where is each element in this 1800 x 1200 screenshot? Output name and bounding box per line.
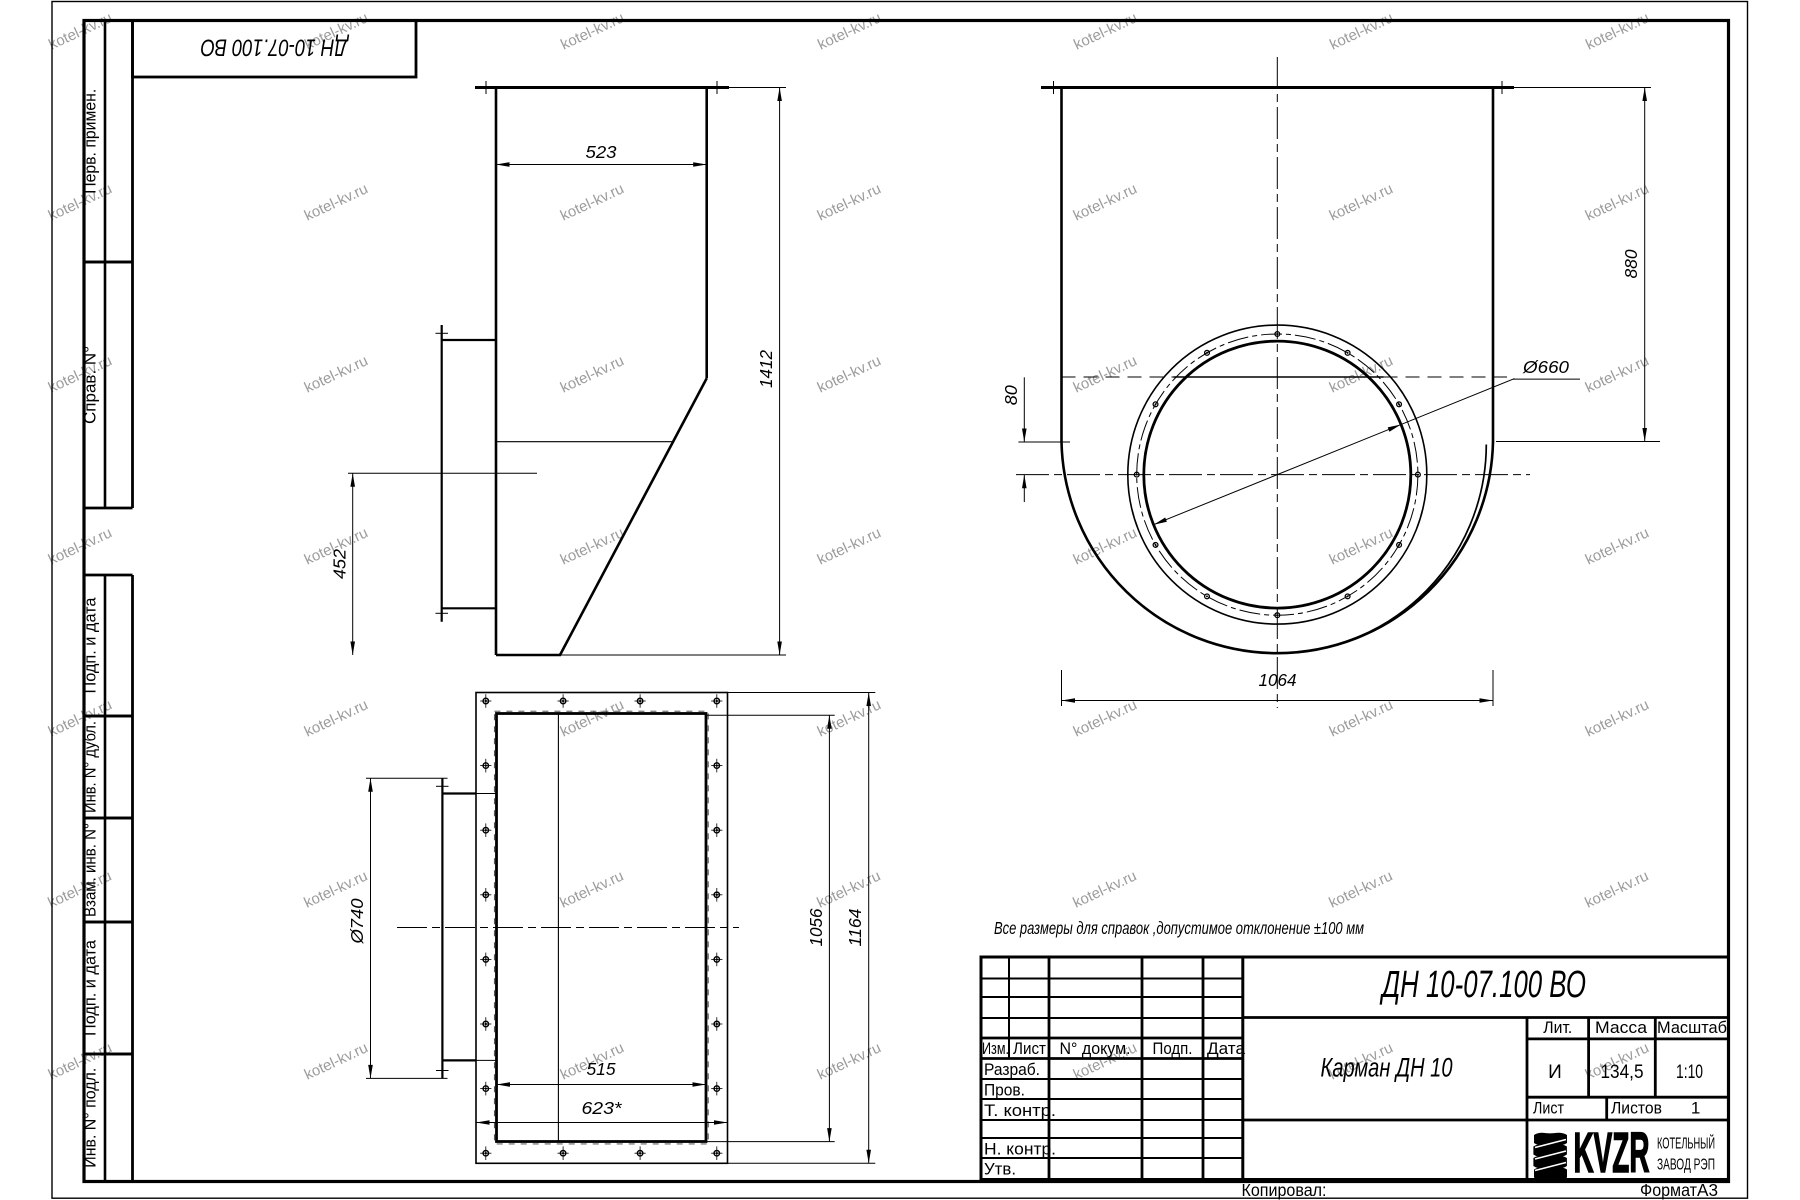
svg-text:КОТЕЛЬНЫЙ: КОТЕЛЬНЫЙ [1657, 1134, 1715, 1153]
svg-text:Взам. инв. N°: Взам. инв. N° [82, 823, 100, 917]
svg-text:Пров.: Пров. [984, 1081, 1025, 1100]
svg-text:Масса: Масса [1595, 1018, 1648, 1037]
svg-text:Формат: Формат [1640, 1180, 1697, 1200]
svg-text:1: 1 [1691, 1099, 1700, 1118]
svg-text:Т. контр.: Т. контр. [984, 1101, 1056, 1120]
svg-text:Ø740: Ø740 [347, 898, 367, 944]
svg-text:Копировал:: Копировал: [1242, 1180, 1327, 1200]
svg-text:А3: А3 [1697, 1180, 1718, 1200]
svg-text:Лист: Лист [1533, 1099, 1564, 1118]
svg-text:452: 452 [330, 549, 350, 579]
svg-text:ЗАВОД РЭП: ЗАВОД РЭП [1657, 1157, 1715, 1174]
svg-text:1056: 1056 [806, 908, 826, 946]
svg-text:Подп. и дата: Подп. и дата [82, 597, 100, 694]
svg-text:Подп.: Подп. [1153, 1039, 1193, 1058]
svg-text:ДН 10-07.100 ВО: ДН 10-07.100 ВО [1379, 964, 1586, 1006]
svg-text:ДН 10-07.100 ВО: ДН 10-07.100 ВО [201, 34, 350, 61]
svg-text:1:10: 1:10 [1676, 1062, 1703, 1083]
svg-text:Инв. N° дубл.: Инв. N° дубл. [82, 721, 100, 813]
svg-text:1164: 1164 [845, 908, 865, 946]
svg-text:134,5: 134,5 [1601, 1062, 1644, 1083]
svg-text:KVZR: KVZR [1574, 1121, 1650, 1185]
svg-text:N° докум.: N° докум. [1060, 1039, 1131, 1058]
svg-text:515: 515 [587, 1059, 616, 1079]
svg-text:Лист: Лист [1013, 1039, 1046, 1058]
svg-text:Карман ДН 10: Карман ДН 10 [1321, 1053, 1453, 1083]
svg-text:1064: 1064 [1259, 670, 1297, 690]
svg-text:523: 523 [586, 142, 617, 162]
svg-text:Инв. N° подл.: Инв. N° подл. [82, 1068, 100, 1168]
svg-text:Н. контр.: Н. контр. [984, 1140, 1056, 1159]
svg-text:Перв. примен.: Перв. примен. [82, 89, 100, 194]
svg-text:Справ. N°: Справ. N° [82, 346, 100, 424]
svg-text:623*: 623* [582, 1098, 623, 1118]
svg-text:Утв.: Утв. [984, 1160, 1016, 1179]
svg-text:Лит.: Лит. [1543, 1018, 1572, 1037]
svg-text:880: 880 [1621, 249, 1641, 278]
svg-text:Все размеры для справок ,допус: Все размеры для справок ,допустимое откл… [994, 918, 1364, 938]
svg-text:Листов: Листов [1611, 1099, 1662, 1118]
svg-text:И: И [1548, 1062, 1562, 1083]
svg-text:Изм.: Изм. [982, 1039, 1009, 1058]
svg-text:1412: 1412 [756, 350, 776, 388]
svg-text:Подп. и дата: Подп. и дата [82, 939, 100, 1036]
svg-text:80: 80 [1001, 385, 1021, 405]
svg-text:Дата: Дата [1207, 1039, 1246, 1058]
svg-text:Масштаб: Масштаб [1657, 1018, 1727, 1037]
svg-text:Ø660: Ø660 [1522, 357, 1569, 377]
svg-text:Разраб.: Разраб. [984, 1060, 1040, 1079]
